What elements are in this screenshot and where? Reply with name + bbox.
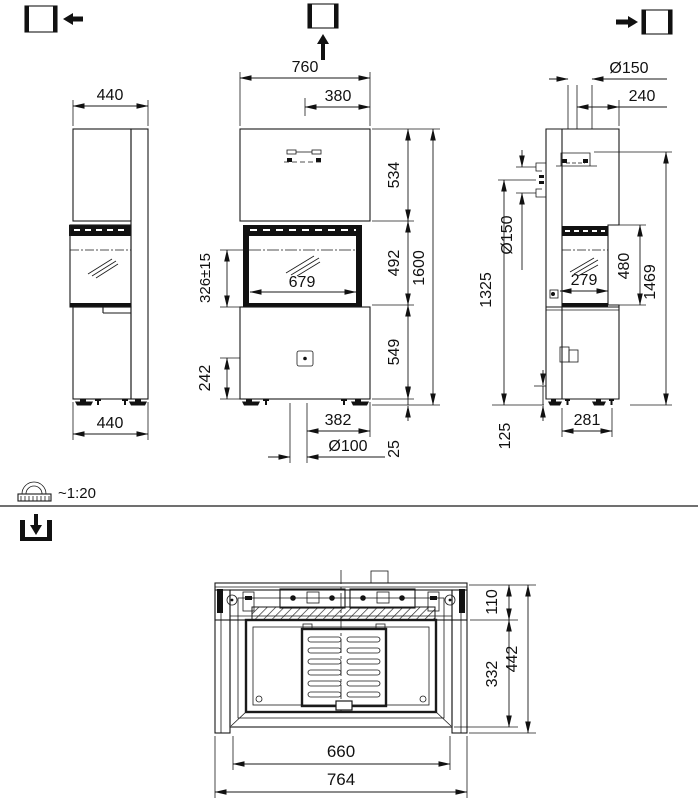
- dim-plan-rear-depth: 110: [484, 589, 501, 615]
- feet-right-view: [548, 399, 614, 406]
- feet-left-view: [75, 399, 147, 406]
- dim-right-glass-depth: 279: [571, 272, 598, 289]
- dim-right-base-depth: 281: [574, 412, 601, 429]
- dim-front-damper-height: 242: [197, 365, 214, 392]
- rear-hardware-left: [217, 589, 254, 613]
- rear-slotted-plate-left: [280, 589, 345, 608]
- dim-right-intake-diameter: Ø150: [499, 215, 516, 254]
- right-side-view: Ø150 240 Ø150: [478, 60, 672, 449]
- front-view: 760 380 679: [197, 59, 440, 463]
- air-damper-knob: [297, 351, 313, 366]
- dim-plan-body-depth: 332: [484, 661, 501, 688]
- grate: [302, 624, 386, 710]
- dim-front-base-height: 549: [386, 339, 403, 366]
- dim-front-door-height: 492: [386, 250, 403, 277]
- dim-right-flue-top-height: 1469: [642, 264, 659, 300]
- hatched-strip: [252, 607, 435, 620]
- glass-hatch-front: [286, 256, 320, 276]
- plan-view: 660 764 110 332 442: [215, 570, 536, 798]
- rear-slotted-plate-right: [350, 589, 415, 608]
- dim-left-bottom-width: 440: [97, 415, 124, 432]
- dim-front-upper-height: 534: [386, 162, 403, 189]
- dim-front-outlet-offset: 382: [325, 412, 352, 429]
- scale-ruler-icon: [18, 482, 51, 501]
- dim-right-flue-rear-offset: 240: [629, 88, 656, 105]
- air-intake-bracket: [536, 163, 546, 197]
- dim-plan-overall-depth: 442: [504, 646, 521, 673]
- plan-view-icon: [20, 514, 52, 541]
- dim-front-firebox-floor-height: 326±15: [197, 253, 214, 303]
- glass-hatch-left: [88, 259, 118, 278]
- rear-connection-detail: [560, 347, 578, 362]
- door-handle: [550, 290, 558, 298]
- dim-front-flue-offset: 380: [325, 88, 352, 105]
- view-direction-left-icon: [25, 6, 83, 32]
- dim-front-plinth-height: 25: [386, 440, 403, 458]
- left-side-view: 440 440: [69, 87, 148, 440]
- arrow-left-glyph: [63, 13, 83, 25]
- dim-right-intake-height: 1325: [478, 272, 495, 308]
- flue-bracket-front: [284, 150, 324, 162]
- scale-note: ~1:20: [18, 482, 96, 502]
- drawing-page: 440 440: [0, 0, 698, 810]
- feet-front-view: [242, 399, 369, 406]
- dim-right-door-opening: 480: [616, 253, 633, 280]
- dim-front-outlet-diameter: Ø100: [328, 438, 367, 455]
- technical-drawing-canvas: 440 440: [0, 0, 698, 810]
- dim-front-glass-width: 679: [289, 274, 316, 291]
- dim-front-overall-width: 760: [292, 59, 319, 76]
- dim-right-flue-diameter: Ø150: [609, 60, 648, 77]
- view-direction-top-icon: [308, 4, 338, 60]
- arrow-right-glyph: [616, 16, 638, 28]
- dim-right-bottom-clearance: 125: [497, 423, 514, 450]
- dim-plan-overall-width: 764: [327, 770, 355, 789]
- scale-label: ~1:20: [58, 485, 96, 502]
- dim-front-overall-height: 1600: [411, 250, 428, 286]
- arrow-down-glyph: [30, 514, 42, 535]
- view-direction-right-icon: [616, 10, 672, 34]
- dim-plan-inner-width: 660: [327, 742, 355, 761]
- arrow-up-glyph: [317, 34, 329, 60]
- dim-left-top-width: 440: [97, 87, 124, 104]
